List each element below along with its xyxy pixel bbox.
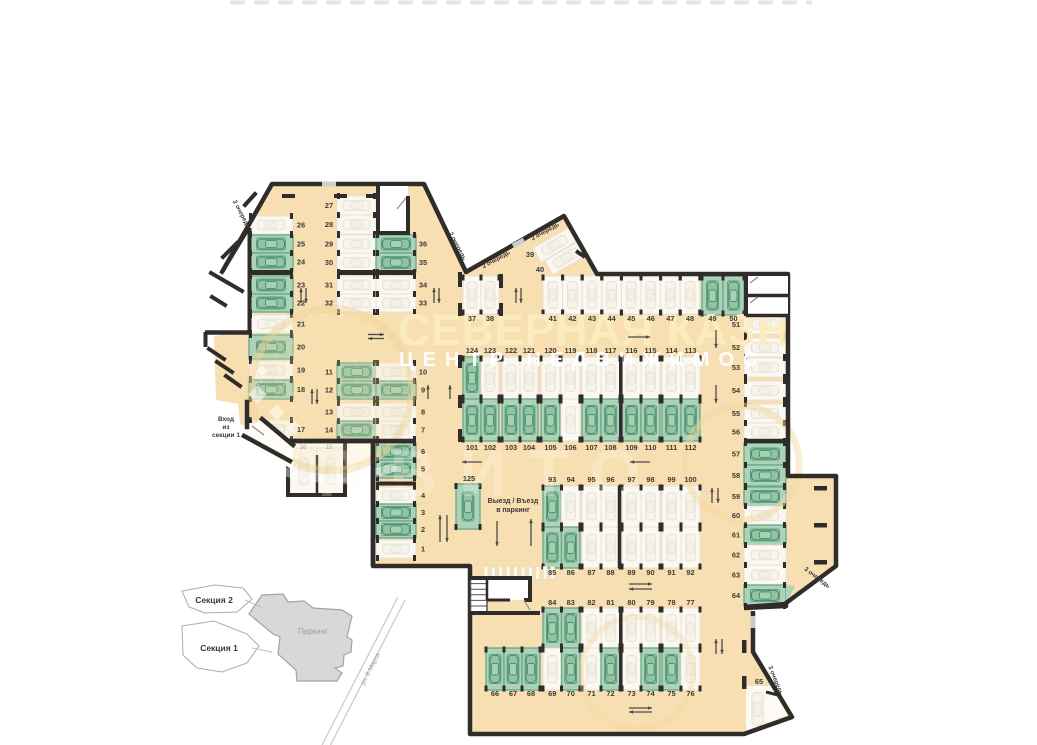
svg-text:12: 12	[325, 386, 333, 395]
svg-text:63: 63	[732, 571, 740, 580]
svg-text:2: 2	[421, 525, 425, 534]
svg-text:Выезд / Въезд: Выезд / Въезд	[488, 498, 539, 505]
svg-text:87: 87	[587, 568, 595, 577]
svg-text:96: 96	[606, 475, 614, 484]
svg-text:106: 106	[564, 443, 576, 452]
svg-text:28: 28	[325, 220, 333, 229]
svg-text:69: 69	[548, 689, 556, 698]
svg-text:124: 124	[466, 346, 479, 355]
svg-text:20: 20	[297, 343, 305, 352]
svg-text:85: 85	[548, 568, 556, 577]
svg-text:27: 27	[325, 201, 333, 210]
svg-text:103: 103	[505, 443, 517, 452]
svg-text:110: 110	[645, 443, 657, 452]
svg-text:47: 47	[666, 314, 674, 323]
svg-text:61: 61	[732, 531, 740, 540]
svg-text:35: 35	[419, 258, 427, 267]
svg-text:Вход: Вход	[218, 416, 234, 423]
svg-text:117: 117	[605, 346, 617, 355]
svg-text:22: 22	[297, 299, 305, 308]
svg-text:54: 54	[732, 386, 741, 395]
svg-text:58: 58	[732, 471, 740, 480]
svg-text:24: 24	[297, 258, 306, 267]
svg-text:74: 74	[646, 689, 655, 698]
svg-text:из: из	[222, 424, 230, 431]
svg-text:44: 44	[607, 314, 616, 323]
svg-text:108: 108	[604, 443, 616, 452]
svg-text:29: 29	[325, 240, 333, 249]
svg-text:6: 6	[421, 447, 425, 456]
svg-text:93: 93	[548, 475, 556, 484]
svg-text:5: 5	[421, 465, 425, 474]
svg-text:секции 1: секции 1	[212, 432, 240, 439]
svg-text:119: 119	[565, 346, 577, 355]
svg-text:109: 109	[625, 443, 637, 452]
svg-text:13: 13	[325, 408, 333, 417]
svg-text:8: 8	[421, 408, 425, 417]
svg-text:102: 102	[484, 443, 496, 452]
svg-text:57: 57	[732, 450, 740, 459]
svg-text:120: 120	[544, 346, 556, 355]
svg-text:125: 125	[463, 474, 475, 483]
svg-text:88: 88	[606, 568, 614, 577]
svg-text:107: 107	[585, 443, 597, 452]
svg-text:21: 21	[297, 320, 305, 329]
svg-text:123: 123	[484, 346, 496, 355]
svg-text:64: 64	[732, 591, 741, 600]
svg-text:68: 68	[527, 689, 535, 698]
svg-text:82: 82	[587, 598, 595, 607]
svg-text:39: 39	[526, 250, 534, 259]
svg-text:95: 95	[587, 475, 595, 484]
svg-text:116: 116	[626, 346, 638, 355]
svg-text:76: 76	[686, 689, 694, 698]
svg-text:86: 86	[567, 568, 575, 577]
svg-text:1: 1	[421, 545, 425, 554]
svg-text:55: 55	[732, 409, 740, 418]
svg-text:32: 32	[325, 299, 333, 308]
svg-text:38: 38	[486, 314, 494, 323]
svg-text:43: 43	[588, 314, 596, 323]
svg-text:17: 17	[297, 425, 305, 434]
svg-text:48: 48	[686, 314, 694, 323]
svg-text:79: 79	[646, 598, 654, 607]
svg-text:84: 84	[548, 598, 557, 607]
svg-text:49: 49	[708, 314, 716, 323]
svg-text:25: 25	[297, 240, 305, 249]
svg-text:121: 121	[523, 346, 535, 355]
svg-text:34: 34	[419, 281, 428, 290]
svg-text:23: 23	[297, 281, 305, 290]
svg-text:122: 122	[505, 346, 517, 355]
svg-text:90: 90	[646, 568, 654, 577]
svg-text:36: 36	[419, 240, 427, 249]
svg-text:70: 70	[567, 689, 575, 698]
svg-text:Секция 1: Секция 1	[200, 643, 238, 653]
svg-text:66: 66	[491, 689, 499, 698]
svg-text:101: 101	[466, 443, 478, 452]
svg-text:89: 89	[627, 568, 635, 577]
svg-text:14: 14	[325, 426, 334, 435]
svg-text:73: 73	[627, 689, 635, 698]
svg-text:113: 113	[685, 346, 697, 355]
svg-text:9: 9	[421, 386, 425, 395]
svg-text:100: 100	[684, 475, 696, 484]
svg-text:40: 40	[536, 265, 544, 274]
svg-text:18: 18	[297, 385, 305, 394]
svg-text:112: 112	[685, 443, 697, 452]
svg-text:99: 99	[667, 475, 675, 484]
svg-text:33: 33	[419, 299, 427, 308]
svg-text:78: 78	[667, 598, 675, 607]
svg-text:104: 104	[523, 443, 536, 452]
svg-text:46: 46	[647, 314, 655, 323]
svg-text:30: 30	[325, 258, 333, 267]
svg-text:97: 97	[627, 475, 635, 484]
svg-text:59: 59	[732, 492, 740, 501]
svg-text:83: 83	[567, 598, 575, 607]
svg-text:Секция 2: Секция 2	[195, 595, 233, 605]
svg-text:60: 60	[732, 511, 740, 520]
svg-text:92: 92	[686, 568, 694, 577]
svg-text:71: 71	[587, 689, 595, 698]
svg-text:94: 94	[567, 475, 576, 484]
svg-text:41: 41	[549, 314, 557, 323]
svg-text:111: 111	[666, 443, 678, 452]
svg-text:62: 62	[732, 551, 740, 560]
svg-text:98: 98	[646, 475, 654, 484]
svg-text:53: 53	[732, 363, 740, 372]
svg-text:77: 77	[686, 598, 694, 607]
svg-text:52: 52	[732, 343, 740, 352]
svg-text:19: 19	[297, 366, 305, 375]
svg-text:Паркинг: Паркинг	[298, 627, 328, 636]
svg-text:в паркинг: в паркинг	[496, 507, 530, 514]
svg-text:26: 26	[297, 221, 305, 230]
svg-text:51: 51	[732, 320, 740, 329]
svg-text:114: 114	[666, 346, 679, 355]
svg-text:10: 10	[419, 368, 427, 377]
svg-text:75: 75	[667, 689, 675, 698]
svg-text:115: 115	[645, 346, 657, 355]
svg-text:11: 11	[325, 368, 333, 377]
svg-text:72: 72	[606, 689, 614, 698]
svg-text:65: 65	[755, 677, 763, 686]
svg-text:105: 105	[544, 443, 556, 452]
svg-text:91: 91	[667, 568, 675, 577]
svg-text:80: 80	[627, 598, 635, 607]
svg-text:118: 118	[586, 346, 598, 355]
svg-text:67: 67	[509, 689, 517, 698]
svg-text:3: 3	[421, 508, 425, 517]
svg-text:37: 37	[468, 314, 476, 323]
svg-text:81: 81	[606, 598, 614, 607]
svg-text:ЦЕНТР НЕДВИЖИМОС: ЦЕНТР НЕДВИЖИМОС	[399, 349, 766, 371]
svg-text:31: 31	[325, 281, 333, 290]
svg-text:56: 56	[732, 428, 740, 437]
svg-text:42: 42	[568, 314, 576, 323]
svg-text:45: 45	[627, 314, 635, 323]
svg-text:7: 7	[421, 426, 425, 435]
